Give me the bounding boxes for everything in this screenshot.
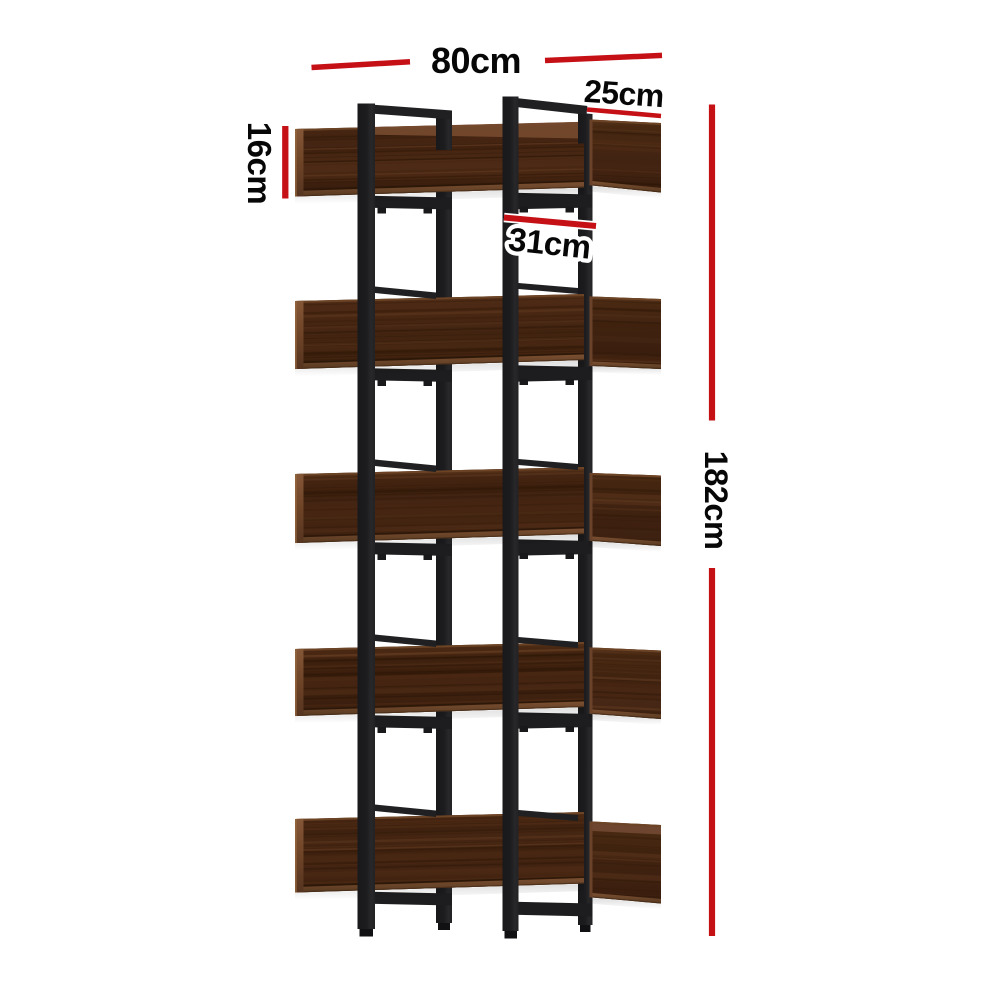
- svg-text:182cm: 182cm: [698, 451, 734, 550]
- svg-text:25cm: 25cm: [583, 73, 665, 114]
- svg-text:80cm: 80cm: [431, 40, 521, 81]
- svg-text:16cm: 16cm: [241, 122, 278, 204]
